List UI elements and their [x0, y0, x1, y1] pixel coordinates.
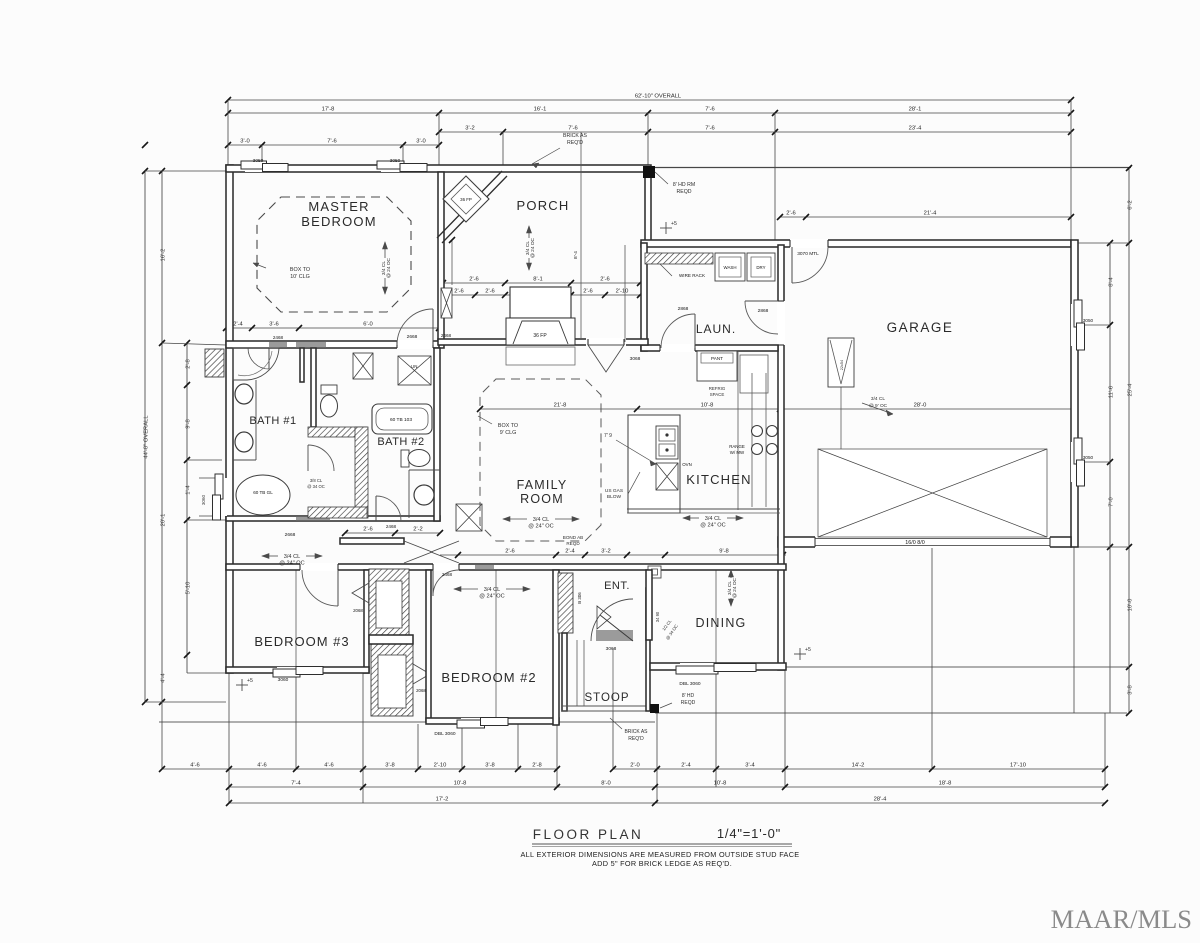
svg-text:8'-1: 8'-1: [533, 277, 543, 283]
svg-text:4'-4: 4'-4: [161, 672, 167, 682]
svg-text:2468: 2468: [442, 572, 453, 577]
svg-text:2'-4: 2'-4: [233, 322, 243, 328]
svg-text:6'-0: 6'-0: [363, 322, 373, 328]
svg-text:16'-1: 16'-1: [534, 107, 547, 113]
svg-text:8'-4: 8'-4: [573, 251, 579, 259]
svg-text:3/4 CL: 3/4 CL: [484, 587, 500, 593]
svg-text:WASH: WASH: [723, 265, 736, 270]
svg-text:36 FP: 36 FP: [533, 333, 547, 339]
svg-text:2'-6: 2'-6: [505, 549, 515, 555]
svg-text:DBL 3060: DBL 3060: [679, 681, 700, 687]
svg-text:60 TB GL: 60 TB GL: [253, 490, 273, 495]
svg-text:16/0 8/0: 16/0 8/0: [905, 540, 924, 546]
svg-text:3/4 CL: 3/4 CL: [533, 517, 549, 523]
svg-text:17'-2: 17'-2: [436, 797, 449, 803]
svg-text:3050: 3050: [253, 158, 264, 164]
svg-text:US GAS: US GAS: [605, 488, 623, 494]
svg-text:2868: 2868: [758, 308, 769, 314]
svg-text:LIN: LIN: [411, 364, 418, 369]
svg-text:4'-6: 4'-6: [324, 763, 334, 769]
svg-text:BATH #1: BATH #1: [249, 415, 296, 427]
svg-text:4'-6: 4'-6: [190, 763, 200, 769]
svg-text:SPACE: SPACE: [710, 392, 725, 397]
svg-text:3068: 3068: [630, 356, 641, 362]
svg-text:16'-2: 16'-2: [161, 249, 167, 262]
svg-text:60 TB 103: 60 TB 103: [390, 417, 412, 423]
svg-text:2'-4: 2'-4: [681, 763, 691, 769]
svg-text:MASTER: MASTER: [308, 199, 369, 214]
svg-text:3'-6: 3'-6: [269, 322, 279, 328]
svg-text:2'-6: 2'-6: [583, 289, 593, 295]
svg-text:3060: 3060: [278, 677, 289, 683]
svg-text:2'-6: 2'-6: [469, 277, 479, 283]
svg-text:REQ'D: REQ'D: [628, 736, 644, 742]
svg-text:KITCHEN: KITCHEN: [686, 472, 751, 487]
svg-text:3'-0: 3'-0: [240, 139, 250, 145]
svg-text:7'-6: 7'-6: [568, 126, 578, 132]
svg-text:3'-8: 3'-8: [485, 763, 495, 769]
svg-text:3/4 CL: 3/4 CL: [871, 396, 885, 402]
svg-text:3'-8: 3'-8: [1128, 685, 1134, 695]
svg-text:LAUN.: LAUN.: [696, 322, 736, 336]
svg-text:3070 MTL: 3070 MTL: [797, 251, 819, 257]
svg-text:2'-4: 2'-4: [565, 549, 575, 555]
svg-text:3'-0: 3'-0: [416, 139, 426, 145]
svg-text:17'-10: 17'-10: [1010, 763, 1026, 769]
svg-text:BLOW: BLOW: [607, 494, 622, 500]
svg-text:ENT.: ENT.: [604, 580, 630, 592]
svg-text:18'-8: 18'-8: [939, 781, 952, 787]
svg-text:FAMILY: FAMILY: [517, 478, 568, 492]
svg-text:+5: +5: [671, 221, 677, 227]
svg-text:2'-8: 2'-8: [532, 763, 542, 769]
svg-text:7' 9: 7' 9: [604, 433, 612, 439]
svg-text:10'-8: 10'-8: [454, 781, 467, 787]
svg-text:@ 24 OC: @ 24 OC: [386, 257, 392, 278]
svg-text:2'-6: 2'-6: [363, 527, 373, 533]
svg-text:2'-6: 2'-6: [454, 289, 464, 295]
svg-text:8' HD RM: 8' HD RM: [673, 182, 695, 188]
svg-text:7'-0: 7'-0: [1109, 497, 1115, 507]
svg-text:PORCH: PORCH: [517, 198, 570, 213]
svg-text:PANT: PANT: [711, 356, 723, 361]
svg-text:DBL 3060: DBL 3060: [434, 731, 455, 737]
svg-text:2'-6: 2'-6: [600, 277, 610, 283]
svg-text:22x54: 22x54: [840, 360, 844, 370]
svg-text:2'-0: 2'-0: [630, 763, 640, 769]
svg-text:3068: 3068: [606, 646, 617, 652]
svg-text:B 306: B 306: [577, 592, 582, 604]
svg-text:10'-8: 10'-8: [714, 781, 727, 787]
svg-text:ADD 5" FOR BRICK LEDGE AS REQ': ADD 5" FOR BRICK LEDGE AS REQ'D.: [592, 859, 732, 868]
svg-text:25'-4: 25'-4: [1128, 383, 1134, 396]
svg-text:7'-6: 7'-6: [327, 139, 337, 145]
svg-text:10' CLG: 10' CLG: [290, 274, 310, 280]
svg-text:4'-6: 4'-6: [257, 763, 267, 769]
svg-text:2468: 2468: [386, 524, 397, 529]
svg-text:8'-4: 8'-4: [1109, 276, 1115, 286]
svg-text:BATH #2: BATH #2: [377, 436, 424, 448]
svg-text:2'-10: 2'-10: [434, 763, 447, 769]
svg-text:3/4 CL: 3/4 CL: [705, 516, 721, 522]
svg-text:STOOP: STOOP: [584, 692, 629, 704]
svg-text:20'-1: 20'-1: [161, 514, 167, 527]
svg-text:OVN: OVN: [682, 462, 692, 467]
svg-text:2068: 2068: [416, 688, 426, 693]
svg-text:W/ MW: W/ MW: [730, 450, 745, 455]
svg-text:21'-8: 21'-8: [554, 403, 567, 409]
svg-text:7'-4: 7'-4: [291, 781, 301, 787]
svg-text:WIRE RACK: WIRE RACK: [679, 273, 706, 278]
svg-text:10'-8: 10'-8: [701, 403, 714, 409]
svg-text:2468: 2468: [441, 333, 452, 338]
svg-text:62'-10" OVERALL: 62'-10" OVERALL: [635, 94, 682, 100]
svg-text:REQD: REQD: [681, 700, 696, 706]
svg-text:@ 34 OC: @ 34 OC: [307, 484, 325, 489]
svg-text:DRY: DRY: [756, 265, 765, 270]
svg-text:BOX TO: BOX TO: [290, 267, 310, 273]
svg-text:3/8 CL: 3/8 CL: [310, 478, 323, 483]
svg-text:1'-4: 1'-4: [186, 484, 192, 494]
svg-text:REQD: REQD: [566, 541, 580, 546]
svg-text:28'-1: 28'-1: [909, 107, 922, 113]
svg-text:+5: +5: [247, 678, 253, 684]
svg-text:@ 24" OC: @ 24" OC: [479, 594, 504, 600]
svg-text:7'-6: 7'-6: [705, 107, 715, 113]
svg-text:2'-6: 2'-6: [485, 289, 495, 295]
svg-text:5'-10: 5'-10: [186, 582, 192, 595]
svg-text:3'-4: 3'-4: [745, 763, 755, 769]
svg-text:11'-6: 11'-6: [1109, 386, 1115, 398]
svg-text:@ 9' OC: @ 9' OC: [869, 403, 888, 409]
svg-text:9' CLG: 9' CLG: [500, 430, 517, 436]
svg-text:ALL EXTERIOR DIMENSIONS ARE ME: ALL EXTERIOR DIMENSIONS ARE MEASURED FRO…: [521, 850, 800, 859]
svg-text:2'-8: 2'-8: [186, 359, 192, 369]
svg-text:BEDROOM #2: BEDROOM #2: [441, 670, 536, 685]
svg-text:3060: 3060: [201, 494, 206, 505]
svg-text:REQD: REQD: [677, 189, 692, 195]
svg-text:BEDROOM #3: BEDROOM #3: [254, 634, 349, 649]
svg-text:ROOM: ROOM: [520, 492, 564, 506]
svg-text:17'-8: 17'-8: [322, 107, 335, 113]
svg-text:BOND AB: BOND AB: [563, 535, 583, 540]
svg-text:+5: +5: [805, 647, 811, 653]
svg-text:3'-2: 3'-2: [465, 126, 475, 132]
svg-text:BOX TO: BOX TO: [498, 423, 518, 429]
svg-text:28'-4: 28'-4: [874, 797, 887, 803]
svg-text:3050: 3050: [390, 158, 401, 164]
svg-text:MAAR/MLS: MAAR/MLS: [1051, 904, 1192, 934]
svg-text:REQ'D: REQ'D: [567, 140, 583, 146]
svg-text:36 FP: 36 FP: [460, 197, 472, 202]
svg-text:34 90: 34 90: [655, 611, 660, 622]
svg-text:DINING: DINING: [696, 616, 747, 630]
svg-text:2'-2: 2'-2: [413, 527, 423, 533]
svg-text:BRICK AS: BRICK AS: [563, 133, 587, 139]
svg-text:@ 24 OC: @ 24 OC: [530, 237, 536, 258]
svg-text:23'-4: 23'-4: [909, 126, 922, 132]
svg-text:2468: 2468: [273, 335, 284, 340]
svg-text:REFRIG: REFRIG: [709, 386, 726, 391]
svg-text:2'-10: 2'-10: [616, 289, 629, 295]
svg-text:GARAGE: GARAGE: [887, 320, 954, 335]
svg-text:28'-0: 28'-0: [914, 403, 927, 409]
svg-text:2068: 2068: [353, 608, 363, 613]
svg-text:FLOOR PLAN: FLOOR PLAN: [533, 827, 644, 842]
svg-text:9'-8: 9'-8: [186, 419, 192, 429]
svg-text:2668: 2668: [285, 532, 296, 538]
svg-text:RANGE: RANGE: [729, 444, 745, 449]
svg-text:10'-0: 10'-0: [1128, 599, 1134, 612]
svg-text:1/4"=1'-0": 1/4"=1'-0": [717, 826, 781, 841]
svg-text:8' HD: 8' HD: [682, 693, 695, 699]
svg-text:6'-2: 6'-2: [1128, 200, 1134, 210]
svg-text:2868: 2868: [678, 306, 689, 312]
svg-text:@ 24 OC: @ 24 OC: [732, 577, 738, 598]
svg-text:44'-8" OVERALL: 44'-8" OVERALL: [144, 415, 150, 459]
svg-text:2668: 2668: [407, 334, 418, 340]
svg-text:@ 24" OC: @ 24" OC: [528, 524, 553, 530]
svg-text:BEDROOM: BEDROOM: [301, 214, 377, 229]
svg-text:2'-6: 2'-6: [786, 211, 796, 217]
svg-text:3050: 3050: [1083, 318, 1094, 323]
svg-text:14'-2: 14'-2: [852, 763, 865, 769]
svg-text:BRICK AS: BRICK AS: [624, 729, 648, 735]
svg-text:9'-8: 9'-8: [719, 549, 729, 555]
svg-text:3/4 CL: 3/4 CL: [284, 554, 300, 560]
svg-text:3'-8: 3'-8: [385, 763, 395, 769]
svg-text:21'-4: 21'-4: [924, 211, 937, 217]
svg-text:3'-2: 3'-2: [601, 549, 611, 555]
svg-text:7'-6: 7'-6: [705, 126, 715, 132]
svg-text:8'-0: 8'-0: [601, 781, 611, 787]
svg-text:@ 24" OC: @ 24" OC: [279, 561, 304, 567]
svg-text:@ 24" OC: @ 24" OC: [700, 523, 725, 529]
svg-text:3050: 3050: [1083, 455, 1094, 460]
